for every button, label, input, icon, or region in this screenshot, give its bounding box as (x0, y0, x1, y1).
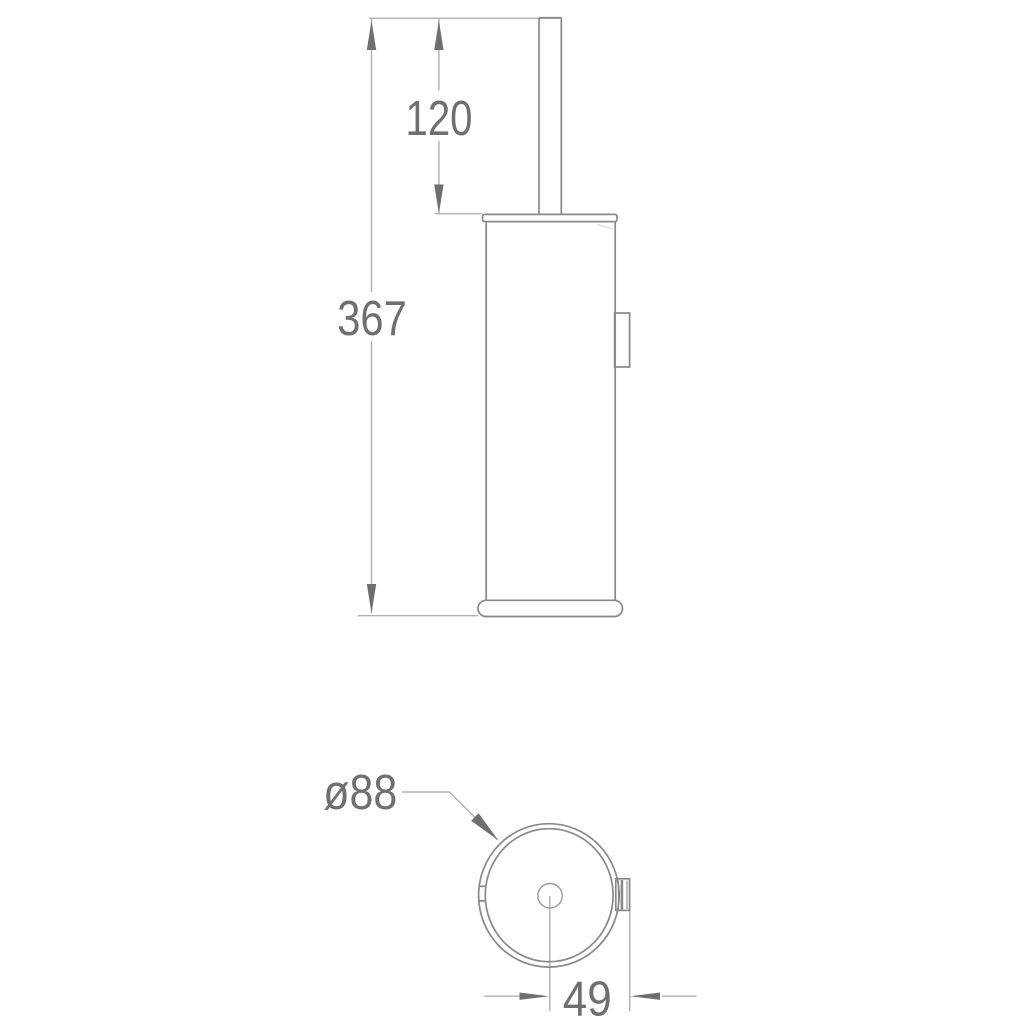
svg-text:367: 367 (337, 291, 407, 346)
svg-text:ø88: ø88 (323, 765, 397, 820)
svg-text:120: 120 (406, 91, 473, 146)
svg-text:49: 49 (563, 972, 612, 1024)
